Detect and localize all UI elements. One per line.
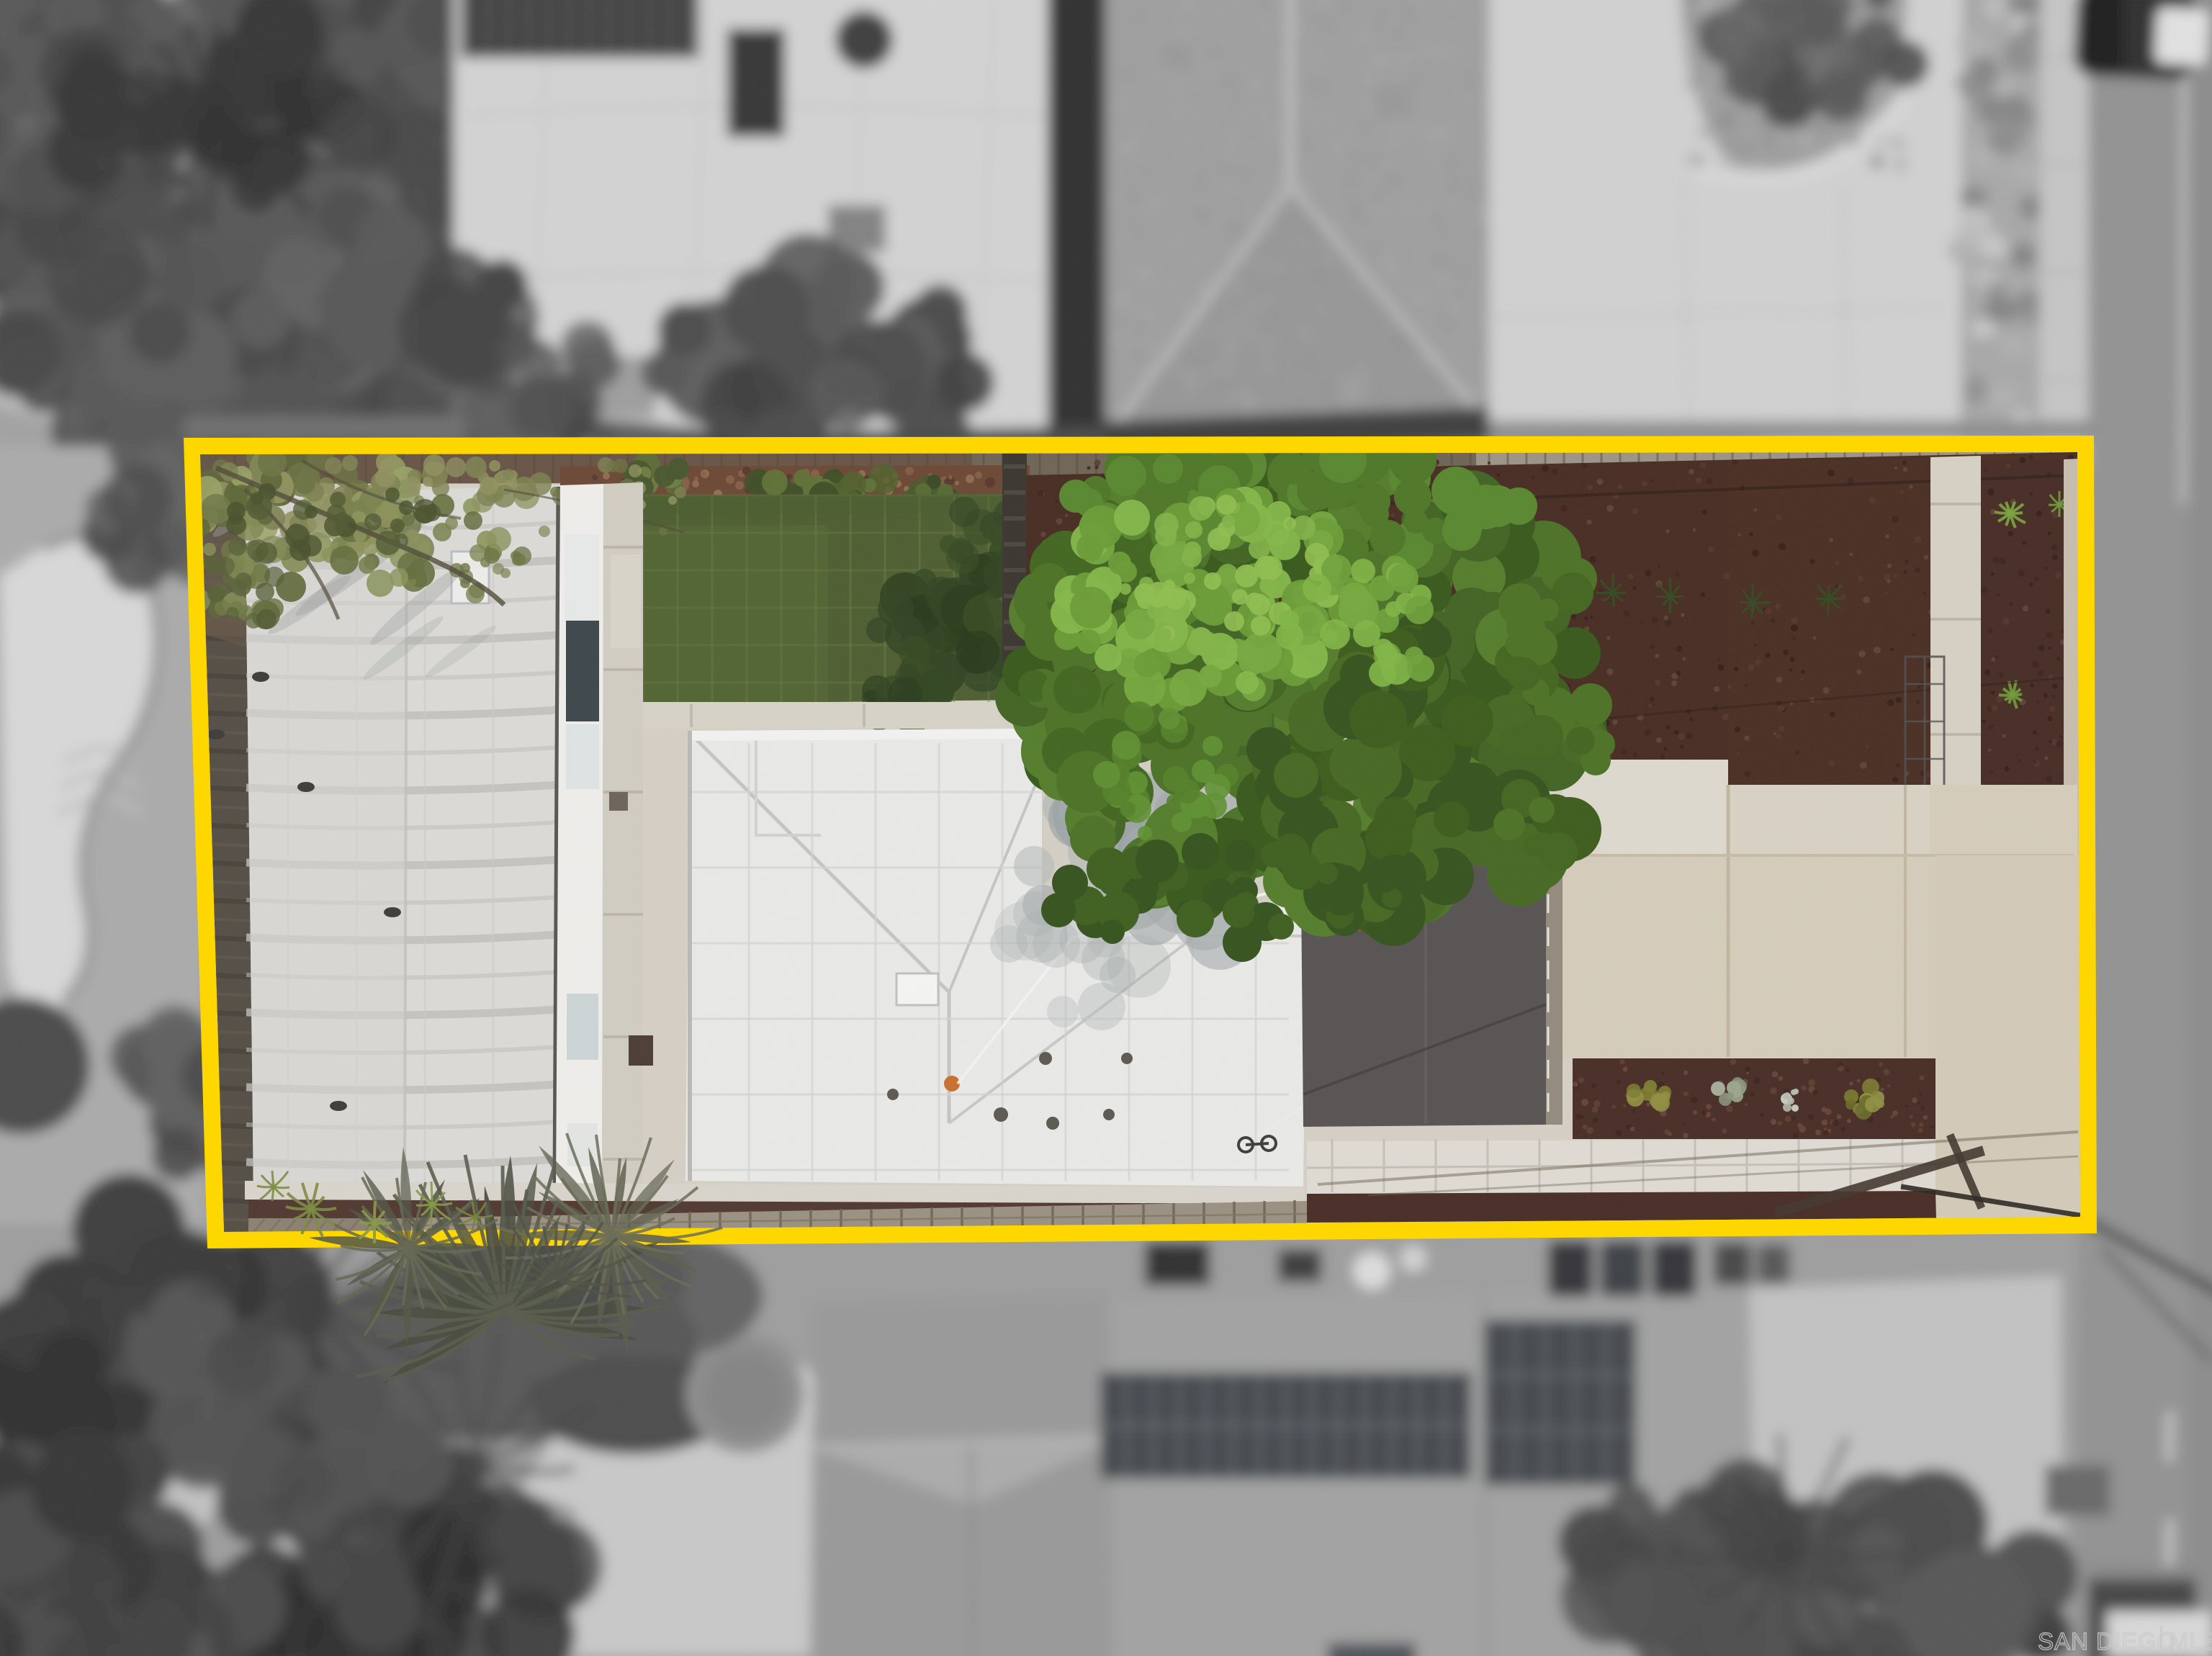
- svg-text:SAN DIEGO: SAN DIEGO: [2038, 1628, 2176, 1655]
- svg-text:MLS: MLS: [2169, 1628, 2212, 1655]
